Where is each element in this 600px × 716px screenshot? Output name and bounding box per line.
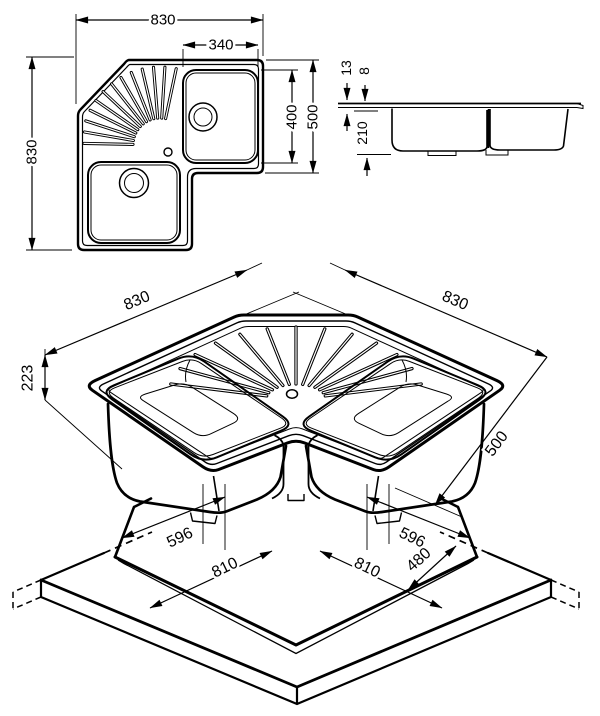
side-dim-rim-total: 13 [338, 60, 354, 76]
plan-right-bowl [183, 70, 258, 163]
cutout-dim-left-outer: 810 [209, 554, 241, 581]
plan-left-drain [120, 169, 149, 198]
iso-view: 830 830 223 500 596 810 596 810 480 [13, 263, 579, 704]
corner-sink-drawing: 830 340 830 400 500 13 8 210 [0, 0, 600, 716]
plan-dim-bowl-width: 340 [208, 37, 233, 54]
cutout-dim-left-inner: 596 [164, 524, 196, 551]
cutout-dim-left-outer-line [150, 551, 272, 608]
plan-fan-drainer [84, 67, 176, 144]
side-bowl-profile [392, 109, 568, 152]
iso-fan-drainer [171, 327, 421, 396]
plan-dim-arm-depth: 500 [305, 104, 322, 129]
side-rim-lines [338, 104, 583, 112]
side-dim-bowl-depth: 210 [354, 121, 370, 145]
plan-dim-bowl-length: 400 [284, 104, 301, 129]
iso-dim-edge-right: 830 [439, 288, 470, 314]
side-dim-rim-lip: 8 [356, 67, 372, 75]
side-view: 13 8 210 [338, 60, 583, 176]
plan-dim-overall-width: 830 [150, 12, 175, 29]
plan-tap-hole [164, 148, 172, 156]
iso-dim-arm-width: 500 [482, 428, 512, 460]
technical-drawing-page: 830 340 830 400 500 13 8 210 [0, 0, 600, 716]
plan-right-drain [189, 103, 217, 131]
cutout-dim-end-width: 480 [403, 545, 434, 576]
plan-dim-overall-depth: 830 [24, 139, 41, 164]
iso-dim-edge-left: 830 [121, 288, 152, 314]
plan-view: 830 340 830 400 500 [24, 12, 322, 251]
iso-dim-total-height: 223 [20, 365, 37, 392]
cutout-inner-reveal [118, 560, 474, 654]
counter-slab [13, 532, 579, 704]
iso-tap-hole [287, 390, 298, 398]
plan-left-bowl [88, 162, 180, 243]
